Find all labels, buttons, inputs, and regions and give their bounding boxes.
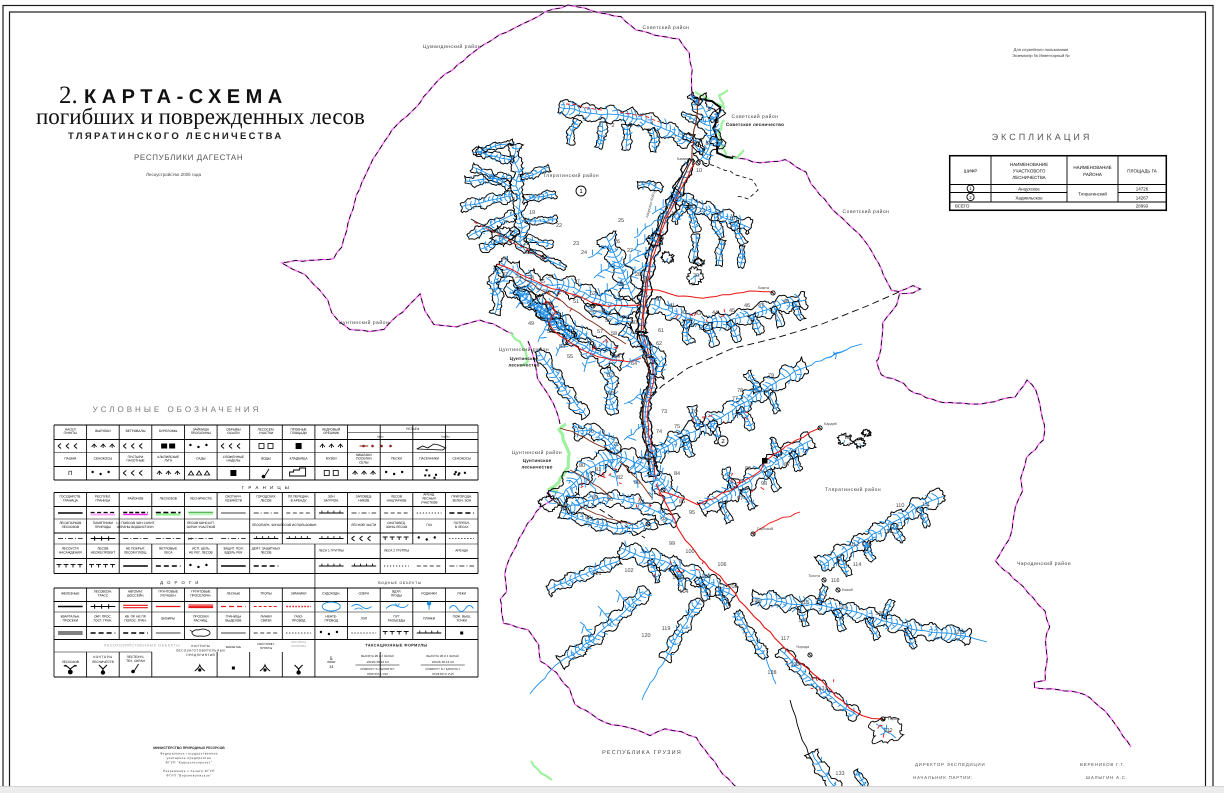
svg-text:БУРЕЛОМЫ: БУРЕЛОМЫ bbox=[159, 429, 178, 433]
svg-text:СЕНОКОСЫ: СЕНОКОСЫ bbox=[94, 457, 113, 461]
svg-text:29: 29 bbox=[658, 236, 664, 242]
svg-text:ВЫРУБКИ: ВЫРУБКИ bbox=[95, 429, 111, 433]
svg-text:125: 125 bbox=[875, 611, 884, 617]
svg-text:128: 128 bbox=[767, 670, 776, 676]
svg-text:75: 75 bbox=[674, 424, 680, 430]
svg-text:ЛЕСОЗАГОТОВИТЕЛЬНЫХ: ЛЕСОЗАГОТОВИТЕЛЬНЫХ bbox=[176, 649, 226, 653]
svg-text:РАЙОНОВ: РАЙОНОВ bbox=[128, 497, 144, 501]
svg-text:92: 92 bbox=[585, 515, 591, 521]
svg-text:71: 71 bbox=[613, 442, 619, 448]
svg-text:ПАХОТНЫЕ: ПАХОТНЫЕ bbox=[126, 459, 144, 463]
svg-text:ШАЛЫГИН А.С.: ШАЛЫГИН А.С. bbox=[1086, 775, 1128, 780]
svg-text:Тляратинский район: Тляратинский район bbox=[543, 173, 599, 179]
svg-text:27: 27 bbox=[627, 248, 633, 254]
svg-text:13: 13 bbox=[699, 208, 705, 214]
svg-text:3: 3 bbox=[629, 123, 632, 129]
svg-text:52: 52 bbox=[590, 291, 596, 297]
svg-text:Цумандинский район: Цумандинский район bbox=[423, 44, 481, 50]
svg-text:131: 131 bbox=[818, 686, 827, 692]
svg-text:91: 91 bbox=[560, 504, 566, 510]
svg-text:33: 33 bbox=[515, 274, 521, 280]
svg-text:40: 40 bbox=[655, 297, 661, 303]
svg-text:47: 47 bbox=[758, 303, 764, 309]
svg-text:ЛЕСХОЗОВ: ЛЕСХОЗОВ bbox=[62, 525, 79, 529]
svg-text:ВЕТРОВАЛЫ: ВЕТРОВАЛЫ bbox=[126, 429, 146, 433]
svg-text:ВЫСОТА 20 2 4 ЗАПАС: ВЫСОТА 20 2 4 ЗАПАС bbox=[361, 654, 395, 658]
svg-text:ПРИРОДЫ: ПРИРОДЫ bbox=[95, 525, 111, 529]
svg-text:ОСЫПИ: ОСЫПИ bbox=[227, 431, 240, 435]
svg-text:ТОЧКИ: ТОЧКИ bbox=[456, 618, 467, 622]
svg-text:РЕСПУБЛИКА ГРУЗИЯ: РЕСПУБЛИКА ГРУЗИЯ bbox=[602, 750, 682, 756]
svg-text:ЛЕСА: ЛЕСА bbox=[164, 550, 173, 554]
svg-text:ПОЛНОТА УЧЛ: ПОЛНОТА УЧЛ bbox=[367, 672, 388, 676]
svg-text:10С2Б 30-12 КЛ: 10С2Б 30-12 КЛ bbox=[432, 660, 454, 664]
svg-text:104: 104 bbox=[679, 589, 688, 595]
svg-text:73: 73 bbox=[661, 409, 667, 415]
svg-text:1: 1 bbox=[583, 117, 586, 123]
svg-text:81: 81 bbox=[595, 467, 601, 473]
svg-text:Советский район: Советский район bbox=[843, 209, 890, 215]
svg-text:44: 44 bbox=[712, 310, 718, 316]
svg-text:НЕ РЕГ. ЛЕСОВ: НЕ РЕГ. ЛЕСОВ bbox=[189, 550, 213, 554]
svg-text:ЛЕСОПАРК. ЗОНА: ЛЕСОПАРК. ЗОНА bbox=[252, 523, 281, 527]
svg-text:36: 36 bbox=[548, 274, 554, 280]
svg-text:лесничество: лесничество bbox=[508, 363, 539, 368]
svg-text:120: 120 bbox=[641, 633, 650, 639]
svg-text:ПРЕДПРИЯТИЙ: ПРЕДПРИЯТИЙ bbox=[186, 653, 215, 657]
svg-text:ОЗЕРА: ОЗЕРА bbox=[359, 592, 370, 596]
svg-text:15: 15 bbox=[729, 216, 735, 222]
svg-text:38: 38 bbox=[618, 282, 624, 288]
svg-text:ТЕХ. ОХРАН: ТЕХ. ОХРАН bbox=[126, 659, 145, 663]
svg-text:ЛЕСНИЧЕСТВ: ЛЕСНИЧЕСТВ bbox=[92, 660, 114, 664]
svg-text:42: 42 bbox=[681, 310, 687, 316]
svg-text:19: 19 bbox=[529, 210, 535, 216]
svg-text:55: 55 bbox=[567, 354, 573, 360]
svg-text:5: 5 bbox=[330, 656, 333, 662]
svg-text:СОМКНУТ 0.7 БОНИТЕТ: СОМКНУТ 0.7 БОНИТЕТ bbox=[425, 667, 460, 671]
svg-text:Хадияльское: Хадияльское bbox=[1015, 195, 1043, 200]
svg-text:РОДНИКИ: РОДНИКИ bbox=[421, 592, 437, 596]
svg-text:26: 26 bbox=[614, 239, 620, 245]
svg-text:ВЕРЕНИКОВ Г.Г.: ВЕРЕНИКОВ Г.Г. bbox=[1080, 762, 1125, 767]
svg-text:МУЗЕИ: МУЗЕИ bbox=[326, 457, 338, 461]
svg-text:60: 60 bbox=[631, 320, 637, 326]
svg-text:ВОДЫ: ВОДЫ bbox=[261, 457, 271, 461]
svg-text:80: 80 bbox=[579, 463, 585, 469]
svg-text:Советский район: Советский район bbox=[732, 114, 779, 120]
svg-text:124: 124 bbox=[838, 605, 847, 611]
svg-text:18: 18 bbox=[509, 197, 515, 203]
svg-text:103: 103 bbox=[672, 575, 681, 581]
svg-text:105: 105 bbox=[701, 574, 710, 580]
svg-text:79: 79 bbox=[768, 373, 774, 379]
svg-text:Тохота: Тохота bbox=[808, 574, 821, 578]
svg-text:5: 5 bbox=[695, 122, 698, 128]
svg-text:Гарбокой: Гарбокой bbox=[757, 527, 773, 531]
svg-text:ГРАНИЦА: ГРАНИЦА bbox=[95, 498, 111, 502]
svg-text:61: 61 bbox=[658, 328, 664, 334]
svg-text:Чорода: Чорода bbox=[796, 645, 810, 649]
svg-text:унитарное предприятие: унитарное предприятие bbox=[167, 756, 212, 760]
svg-text:78: 78 bbox=[737, 388, 743, 394]
svg-text:ВЫСОТА 20 2 4 ЗАПАС: ВЫСОТА 20 2 4 ЗАПАС bbox=[426, 654, 460, 658]
svg-text:ЛЭП: ЛЭП bbox=[360, 617, 367, 621]
svg-text:ФГУП "Верхневолжское": ФГУП "Верхневолжское" bbox=[166, 774, 212, 778]
svg-text:ПУНКТЫ: ПУНКТЫ bbox=[64, 431, 77, 435]
svg-text:49: 49 bbox=[528, 321, 534, 327]
svg-text:63: 63 bbox=[642, 354, 648, 360]
svg-text:ЛЕСОМ ПЛОЩ.: ЛЕСОМ ПЛОЩ. bbox=[124, 550, 147, 554]
svg-text:ГРАНИЦА: ГРАНИЦА bbox=[63, 498, 79, 502]
svg-text:ЛЕСНОЙ ЧАСТИ: ЛЕСНОЙ ЧАСТИ bbox=[351, 523, 377, 527]
svg-text:85: 85 bbox=[679, 499, 685, 505]
svg-text:ШИФР: ШИФР bbox=[964, 169, 978, 174]
svg-text:ЗЕЛЕН. ЗОН: ЗЕЛЕН. ЗОН bbox=[452, 498, 472, 502]
svg-text:133: 133 bbox=[835, 771, 844, 777]
svg-text:ЗАГРЯЗН.: ЗАГРЯЗН. bbox=[324, 498, 339, 502]
svg-text:77: 77 bbox=[732, 396, 738, 402]
svg-text:ХОЗЯЙСТВ: ХОЗЯЙСТВ bbox=[225, 498, 242, 502]
svg-text:НАИМЕНОВАНИЕ: НАИМЕНОВАНИЕ bbox=[1010, 162, 1048, 167]
svg-text:ОХРАНЫ ВОДОИСТОЧН.: ОХРАНЫ ВОДОИСТОЧН. bbox=[117, 525, 155, 529]
svg-text:НАИМЕНОВАНИЕ: НАИМЕНОВАНИЕ bbox=[1073, 165, 1111, 170]
svg-text:74: 74 bbox=[656, 429, 662, 435]
svg-text:88: 88 bbox=[845, 435, 851, 441]
svg-text:2: 2 bbox=[611, 123, 614, 129]
svg-text:СЕНОКОСЫ: СЕНОКОСЫ bbox=[452, 457, 471, 461]
svg-text:100: 100 bbox=[685, 549, 694, 555]
svg-text:КЛАДБИЩА: КЛАДБИЩА bbox=[290, 457, 309, 461]
svg-text:ЛЕСОВ ИСПОЛЬЗОВАН.: ЛЕСОВ ИСПОЛЬЗОВАН. bbox=[280, 523, 317, 527]
svg-text:В АРЕНДУ: В АРЕНДУ bbox=[291, 498, 308, 502]
svg-text:ПРОСЕЛОЧН.: ПРОСЕЛОЧН. bbox=[190, 593, 211, 597]
svg-text:СУДОХОДН.: СУДОХОДН. bbox=[322, 592, 340, 596]
svg-text:102: 102 bbox=[624, 568, 633, 574]
svg-text:РАЙОНА: РАЙОНА bbox=[1083, 171, 1102, 177]
svg-text:АРЕНДА: АРЕНДА bbox=[455, 549, 469, 553]
svg-text:132: 132 bbox=[883, 728, 892, 734]
svg-text:Камилюх: Камилюх bbox=[677, 157, 693, 161]
svg-text:115: 115 bbox=[801, 600, 810, 606]
svg-text:23: 23 bbox=[573, 241, 579, 247]
svg-text:ОРЕШНИК: ОРЕШНИК bbox=[323, 431, 339, 435]
svg-text:Чародинский район: Чародинский район bbox=[1017, 561, 1071, 567]
svg-text:УЧАСТКОВ: УЧАСТКОВ bbox=[421, 500, 438, 504]
svg-text:106: 106 bbox=[717, 562, 726, 568]
svg-text:ГКЗ: ГКЗ bbox=[426, 523, 432, 527]
svg-text:21: 21 bbox=[523, 241, 529, 247]
svg-text:ВОДНЫЕ ОБЪЕКТЫ: ВОДНЫЕ ОБЪЕКТЫ bbox=[378, 581, 422, 585]
svg-text:45: 45 bbox=[729, 308, 735, 314]
svg-text:20: 20 bbox=[494, 229, 500, 235]
svg-text:25: 25 bbox=[618, 218, 624, 224]
svg-text:98: 98 bbox=[761, 481, 767, 487]
svg-text:64: 64 bbox=[631, 361, 637, 367]
svg-text:Чадаколоб: Чадаколоб bbox=[585, 309, 605, 313]
svg-text:119: 119 bbox=[662, 626, 671, 632]
svg-text:РАЗЪЕЗДЫ: РАЗЪЕЗДЫ bbox=[388, 618, 406, 622]
svg-text:ПРОСЕКИ: ПРОСЕКИ bbox=[63, 618, 79, 622]
svg-text:34: 34 bbox=[528, 275, 534, 281]
svg-text:ПУНКТЫ: ПУНКТЫ bbox=[260, 646, 273, 650]
svg-text:УЧАСТКИ: УЧАСТКИ bbox=[259, 431, 274, 435]
svg-text:14726: 14726 bbox=[1136, 186, 1149, 191]
svg-text:ВДОЛЬ РЕК: ВДОЛЬ РЕК bbox=[224, 550, 242, 554]
svg-text:РЕЛЬЕФ: РЕЛЬЕФ bbox=[406, 427, 420, 431]
svg-text:ЗОНЫ ЛЕСОВ: ЗОНЫ ЛЕСОВ bbox=[386, 525, 407, 529]
svg-text:ЛЕСНИЧЕСТВ: ЛЕСНИЧЕСТВ bbox=[190, 497, 212, 501]
svg-text:ВСЕГО: ВСЕГО bbox=[955, 203, 970, 208]
svg-text:Тлярата: Тлярата bbox=[641, 457, 656, 461]
svg-text:ЭКСПЛИКАЦИЯ: ЭКСПЛИКАЦИЯ bbox=[992, 132, 1093, 142]
svg-text:ЛЕСОХОЗЯЙСТВЕННЫЕ ОБЪЕКТЫ: ЛЕСОХОЗЯЙСТВЕННЫЕ ОБЪЕКТЫ bbox=[104, 643, 180, 648]
svg-text:ТРАСС: ТРАСС bbox=[98, 593, 109, 597]
svg-text:46: 46 bbox=[744, 303, 750, 309]
svg-text:Бежта: Бежта bbox=[758, 286, 770, 290]
svg-text:Федеральное государственное: Федеральное государственное bbox=[160, 752, 218, 756]
svg-text:ПАСЕЧНИКИ: ПАСЕЧНИКИ bbox=[419, 457, 439, 461]
svg-text:ЛЕСНИЧЕСТВА: ЛЕСНИЧЕСТВА bbox=[1012, 175, 1045, 180]
svg-text:ЛЕСОВ: ЛЕСОВ bbox=[260, 550, 271, 554]
svg-text:76: 76 bbox=[691, 409, 697, 415]
svg-text:ВИЗИРЫ: ВИЗИРЫ bbox=[161, 617, 175, 621]
svg-text:Экземпляр № Инвентарный №: Экземпляр № Инвентарный № bbox=[1012, 53, 1070, 58]
svg-text:117: 117 bbox=[781, 636, 790, 642]
svg-text:43: 43 bbox=[695, 311, 701, 317]
svg-text:ПЛОЩАДЬ ГА: ПЛОЩАДЬ ГА bbox=[1127, 169, 1156, 174]
svg-text:Тляратинский район: Тляратинский район bbox=[825, 487, 881, 493]
svg-text:51: 51 bbox=[573, 299, 579, 305]
svg-text:ВЫДЕЛОВ: ВЫДЕЛОВ bbox=[225, 618, 241, 622]
svg-text:50: 50 bbox=[547, 301, 553, 307]
svg-text:94: 94 bbox=[661, 517, 667, 523]
svg-text:ЛЕСНЫЕ: ЛЕСНЫЕ bbox=[227, 592, 241, 596]
svg-text:РЕКИ: РЕКИ bbox=[457, 592, 466, 596]
svg-text:58: 58 bbox=[611, 331, 617, 337]
svg-text:130: 130 bbox=[790, 662, 799, 668]
svg-text:СВЯЗИ: СВЯЗИ bbox=[261, 618, 273, 622]
svg-text:РАСЧИЩ.: РАСЧИЩ. bbox=[194, 618, 209, 622]
svg-text:37: 37 bbox=[574, 279, 580, 285]
svg-text:35: 35 bbox=[539, 279, 545, 285]
svg-text:НАСАЖДЕНИЯ: НАСАЖДЕНИЯ bbox=[59, 550, 83, 554]
svg-text:Цунтинское: Цунтинское bbox=[523, 458, 552, 463]
svg-text:10: 10 bbox=[696, 168, 702, 174]
svg-text:НАЦПАРКОВ: НАЦПАРКОВ bbox=[387, 498, 407, 502]
svg-text:Д О Р О Г И: Д О Р О Г И bbox=[160, 580, 200, 585]
svg-text:Ланда: Ланда bbox=[524, 251, 536, 255]
svg-text:31: 31 bbox=[503, 256, 509, 262]
svg-text:Цунтинское: Цунтинское bbox=[510, 356, 539, 361]
svg-text:116: 116 bbox=[831, 578, 840, 584]
svg-text:ЖЕЛЕЗНЫЕ: ЖЕЛЕЗНЫЕ bbox=[61, 592, 79, 596]
svg-text:39: 39 bbox=[642, 277, 648, 283]
svg-text:9: 9 bbox=[653, 182, 656, 188]
svg-text:70: 70 bbox=[588, 429, 594, 435]
svg-text:МАСШТАБ: МАСШТАБ bbox=[226, 645, 241, 649]
svg-text:32: 32 bbox=[502, 272, 508, 278]
svg-text:ПРУДЫ: ПРУДЫ bbox=[391, 593, 402, 597]
svg-text:лесничество: лесничество bbox=[521, 465, 552, 470]
svg-text:ЛЕСХОЗОВ: ЛЕСХОЗОВ bbox=[160, 497, 177, 501]
svg-text:83: 83 bbox=[634, 480, 640, 486]
svg-text:62: 62 bbox=[656, 341, 662, 347]
svg-text:99: 99 bbox=[669, 541, 675, 547]
svg-text:Для служебного пользования: Для служебного пользования bbox=[1014, 47, 1069, 52]
svg-text:95: 95 bbox=[689, 510, 695, 516]
svg-text:УЧАСТКОВОГО: УЧАСТКОВОГО bbox=[1013, 169, 1046, 174]
svg-text:86: 86 bbox=[745, 466, 751, 472]
svg-text:68: 68 bbox=[608, 391, 614, 397]
svg-text:59: 59 bbox=[614, 354, 620, 360]
svg-text:110: 110 bbox=[896, 503, 905, 509]
svg-text:Цунтинский район: Цунтинский район bbox=[339, 320, 389, 326]
svg-text:Цунтинский район: Цунтинский район bbox=[499, 347, 549, 353]
svg-text:ТАКСАЦИОННЫЕ ФОРМУЛЫ: ТАКСАЦИОННЫЕ ФОРМУЛЫ bbox=[365, 644, 427, 648]
svg-text:ШОССЕЙН.: ШОССЕЙН. bbox=[127, 593, 145, 597]
svg-text:Советский район: Советский район bbox=[643, 25, 690, 31]
svg-text:67: 67 bbox=[607, 373, 613, 379]
svg-text:ОХРАН УЧАСТКОВ: ОХРАН УЧАСТКОВ bbox=[187, 525, 215, 529]
svg-text:ДИРЕКТОР ЭКСПЕДИЦИИ: ДИРЕКТОР ЭКСПЕДИЦИИ bbox=[915, 762, 985, 767]
svg-text:КОНТОРЫ: КОНТОРЫ bbox=[93, 655, 112, 659]
svg-text:93: 93 bbox=[638, 500, 644, 506]
svg-text:16: 16 bbox=[671, 211, 677, 217]
svg-text:53: 53 bbox=[547, 329, 553, 335]
svg-text:113: 113 bbox=[884, 529, 893, 535]
svg-text:Цунтинский район: Цунтинский район bbox=[512, 450, 562, 456]
svg-text:СЕЛЫ: СЕЛЫ bbox=[359, 461, 369, 465]
svg-text:ЛУГА: ЛУГА bbox=[164, 459, 173, 463]
svg-text:111: 111 bbox=[922, 502, 930, 508]
svg-text:ЗИМНИКИ: ЗИМНИКИ bbox=[291, 592, 307, 596]
svg-text:101: 101 bbox=[592, 571, 601, 577]
svg-text:ЛЕСА 1 ГРУППЫ: ЛЕСА 1 ГРУППЫ bbox=[319, 549, 345, 553]
svg-text:108: 108 bbox=[728, 584, 737, 590]
svg-text:97: 97 bbox=[737, 496, 743, 502]
svg-text:6: 6 bbox=[707, 107, 710, 113]
svg-text:8: 8 bbox=[705, 141, 708, 147]
svg-text:Анцухское: Анцухское bbox=[1018, 186, 1040, 191]
svg-text:112: 112 bbox=[851, 542, 860, 548]
svg-text:Горель: Горель bbox=[888, 717, 900, 721]
svg-text:Лесоустройство 2005 года: Лесоустройство 2005 года bbox=[146, 172, 201, 177]
svg-text:28: 28 bbox=[635, 272, 641, 278]
svg-text:ПРОВОД: ПРОВОД bbox=[292, 618, 306, 622]
svg-text:ЛЕСХОЗОВ: ЛЕСХОЗОВ bbox=[62, 660, 79, 664]
svg-text:7: 7 bbox=[673, 135, 676, 141]
svg-text:ПРОГАЛИНЫ: ПРОГАЛИНЫ bbox=[191, 431, 211, 435]
svg-text:ТРОПЫ: ТРОПЫ bbox=[260, 592, 272, 596]
svg-text:82: 82 bbox=[617, 475, 623, 481]
svg-text:1,2: 1,2 bbox=[188, 537, 193, 541]
svg-text:56: 56 bbox=[605, 318, 611, 324]
svg-text:ПЛОЩАДИ: ПЛОЩАДИ bbox=[290, 431, 307, 435]
svg-text:24: 24 bbox=[581, 250, 587, 256]
svg-text:89: 89 bbox=[592, 495, 598, 501]
svg-text:10С2Б 30-12 КЛ: 10С2Б 30-12 КЛ bbox=[366, 660, 388, 664]
svg-text:РЕСПУБЛИКИ ДАГЕСТАН: РЕСПУБЛИКИ ДАГЕСТАН bbox=[134, 153, 243, 162]
svg-text:14267: 14267 bbox=[1136, 195, 1149, 200]
svg-text:ЛЕСА 2 ГРУППЫ: ЛЕСА 2 ГРУППЫ bbox=[384, 549, 410, 553]
svg-text:ЛЕСХОЗЫ: ЛЕСХОЗЫ bbox=[291, 644, 306, 648]
svg-text:ПОЛНОТА УЧЛ: ПОЛНОТА УЧЛ bbox=[432, 672, 453, 676]
svg-text:НАДЕЛЫ: НАДЕЛЫ bbox=[227, 459, 241, 463]
svg-text:87: 87 bbox=[784, 462, 790, 468]
svg-text:НЕОХВ.ПРОЕКТ: НЕОХВ.ПРОЕКТ bbox=[91, 550, 116, 554]
svg-text:Кардиб: Кардиб bbox=[824, 422, 838, 426]
svg-text:ПРОВОД: ПРОВОД bbox=[324, 618, 338, 622]
svg-text:НАЧАЛЬНИК ПАРТИИ:: НАЧАЛЬНИК ПАРТИИ: bbox=[913, 775, 973, 780]
svg-text:СОМКНУТ 0.7 БОНИТЕТ: СОМКНУТ 0.7 БОНИТЕТ bbox=[360, 667, 395, 671]
svg-text:УСЛОВНЫЕ ОБОЗНАЧЕНИЯ: УСЛОВНЫЕ ОБОЗНАЧЕНИЯ bbox=[93, 405, 262, 414]
svg-text:САДЫ: САДЫ bbox=[196, 457, 206, 461]
svg-text:114: 114 bbox=[853, 562, 862, 568]
svg-text:14: 14 bbox=[715, 211, 721, 217]
svg-text:ПЕСКИ: ПЕСКИ bbox=[391, 457, 403, 461]
svg-text:109: 109 bbox=[751, 598, 760, 604]
svg-text:В ЛЕСАХ: В ЛЕСАХ bbox=[455, 525, 470, 529]
svg-text:горы: горы bbox=[377, 435, 384, 439]
svg-text:Г Р А Н И Ц Ы: Г Р А Н И Ц Ы bbox=[242, 485, 291, 490]
svg-text:ПАШНИ: ПАШНИ bbox=[64, 457, 77, 461]
svg-text:57: 57 bbox=[597, 329, 603, 335]
svg-text:22: 22 bbox=[556, 223, 562, 229]
svg-text:12: 12 bbox=[688, 204, 694, 210]
svg-text:4: 4 bbox=[650, 121, 653, 127]
svg-text:Кожоб: Кожоб bbox=[842, 588, 854, 592]
svg-text:123: 123 bbox=[798, 618, 807, 624]
svg-text:11: 11 bbox=[676, 192, 682, 198]
svg-text:ФГУП "Кавказлеспроект": ФГУП "Кавказлеспроект" bbox=[166, 761, 213, 765]
svg-text:УЛУЧШЕН.: УЛУЧШЕН. bbox=[160, 593, 177, 597]
svg-text:48: 48 bbox=[783, 299, 789, 305]
svg-text:МИНИСТЕРСТВО ПРИРОДНЫХ РЕСУРСО: МИНИСТЕРСТВО ПРИРОДНЫХ РЕСУРСОВ bbox=[153, 746, 225, 750]
svg-text:КОНТОРЫ: КОНТОРЫ bbox=[191, 644, 210, 648]
svg-text:41: 41 bbox=[669, 303, 675, 309]
svg-text:погибших и поврежденных лесов: погибших и поврежденных лесов bbox=[36, 104, 365, 129]
svg-text:127: 127 bbox=[953, 630, 962, 636]
svg-text:Тляратинский: Тляратинский bbox=[1078, 191, 1107, 196]
svg-text:90: 90 bbox=[607, 497, 613, 503]
svg-text:ГОСТ. ГРАН.: ГОСТ. ГРАН. bbox=[94, 618, 113, 622]
svg-text:Разрешение к печати ФГУП: Разрешение к печати ФГУП bbox=[163, 769, 215, 773]
svg-text:ТЛЯРАТИНСКОГО ЛЕСНИЧЕСТВА: ТЛЯРАТИНСКОГО ЛЕСНИЧЕСТВА bbox=[68, 131, 284, 142]
svg-text:14: 14 bbox=[329, 664, 334, 669]
svg-text:30: 30 bbox=[693, 273, 699, 279]
svg-text:горбы: горбы bbox=[441, 435, 449, 439]
svg-text:54: 54 bbox=[559, 344, 565, 350]
svg-text:84: 84 bbox=[674, 471, 680, 477]
svg-text:ЛЕСОВ: ЛЕСОВ bbox=[260, 498, 271, 502]
svg-text:НИКОВ: НИКОВ bbox=[358, 498, 369, 502]
svg-text:П: П bbox=[68, 470, 72, 477]
svg-text:ПОЛОС. ГРАН.: ПОЛОС. ГРАН. bbox=[124, 618, 146, 622]
svg-text:Советское лесничество: Советское лесничество bbox=[726, 122, 784, 127]
svg-text:ПЛЯЖИ: ПЛЯЖИ bbox=[423, 617, 436, 621]
svg-text:28993: 28993 bbox=[1136, 203, 1149, 208]
